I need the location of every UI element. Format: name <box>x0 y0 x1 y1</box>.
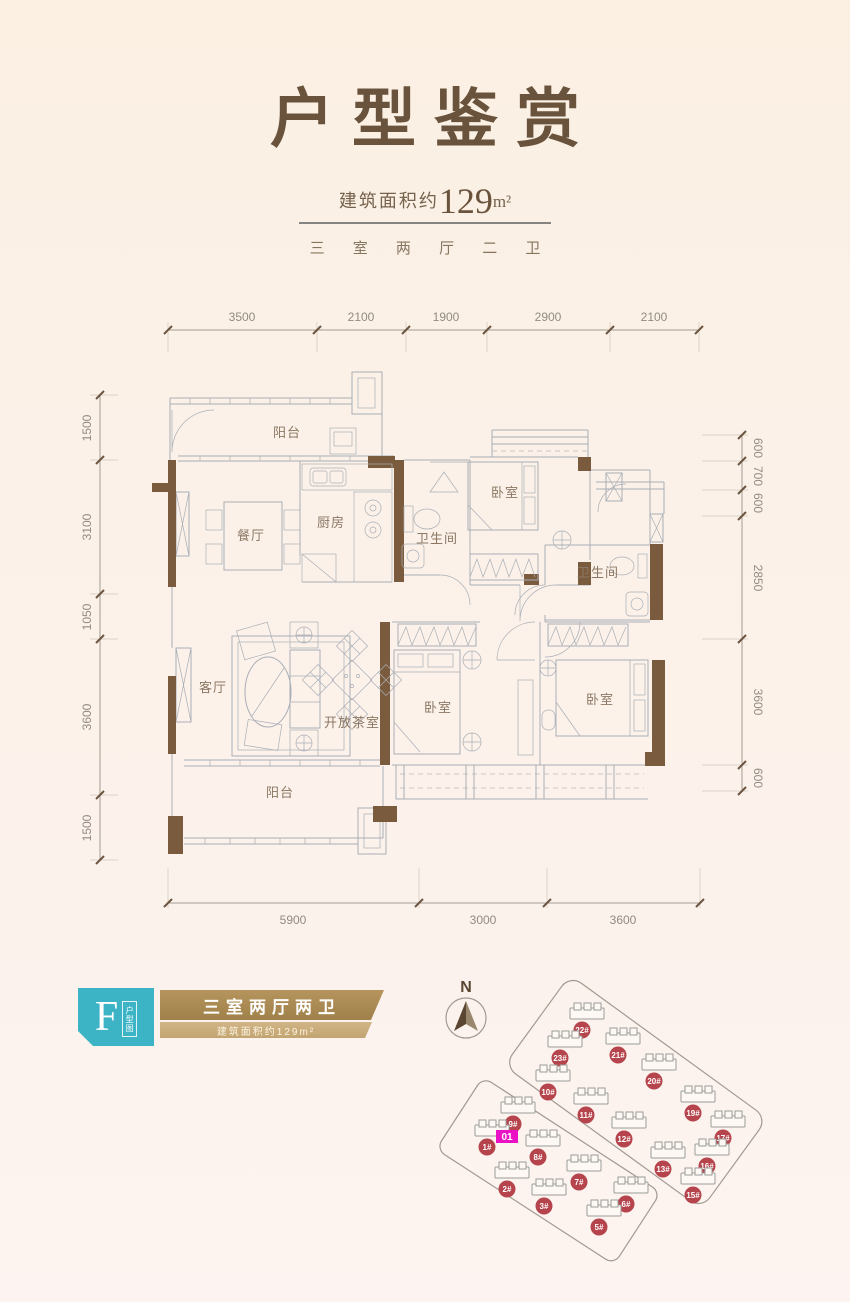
building-badge-label: 23# <box>553 1054 567 1063</box>
building-badge-label: 3# <box>540 1202 549 1211</box>
building-badge-label: 7# <box>575 1178 584 1187</box>
dim-right-1: 600 <box>751 438 765 458</box>
page: 户型鉴赏 建筑面积约129m² 三 室 两 厅 二 卫 3500 2100 19… <box>0 0 850 1302</box>
dim-top-1: 3500 <box>229 310 256 324</box>
room-label-tea-room: 开放茶室 <box>324 715 380 730</box>
building-footprint <box>574 1088 608 1104</box>
dim-right-5: 3600 <box>751 689 765 716</box>
building-footprint <box>495 1162 529 1178</box>
dim-right-6: 600 <box>751 768 765 788</box>
building-footprint <box>606 1028 640 1044</box>
building-footprint <box>587 1200 621 1216</box>
dim-left-2: 3100 <box>80 513 94 540</box>
building-footprint <box>711 1111 745 1127</box>
room-label-bedroom-right: 卧室 <box>586 692 614 707</box>
building-footprint <box>532 1179 566 1195</box>
room-label-balcony-top: 阳台 <box>273 425 301 440</box>
building-badge-label: 12# <box>617 1135 631 1144</box>
dim-top-3: 1900 <box>433 310 460 324</box>
dim-top-5: 2100 <box>641 310 668 324</box>
building-badge-label: 10# <box>541 1088 555 1097</box>
unit-01-label: 01 <box>501 1132 513 1143</box>
dim-right-2: 700 <box>751 466 765 486</box>
type-area-banner: 建筑面积约129m² <box>160 1022 372 1038</box>
room-label-balcony-bottom: 阳台 <box>266 785 294 800</box>
dim-top-4: 2900 <box>535 310 562 324</box>
dim-bottom-1: 5900 <box>280 913 307 927</box>
building-badge-label: 6# <box>622 1200 631 1209</box>
dim-left-3: 1050 <box>80 603 94 630</box>
dim-right-3: 600 <box>751 493 765 513</box>
building-badge-label: 9# <box>509 1120 518 1129</box>
building-footprint <box>642 1054 676 1070</box>
building-footprint <box>501 1097 535 1113</box>
room-label-bath2: 卫生间 <box>577 565 619 580</box>
building-badge-label: 5# <box>595 1223 604 1232</box>
building-footprint <box>567 1155 601 1171</box>
dim-left-1: 1500 <box>80 414 94 441</box>
building-badge-label: 8# <box>534 1153 543 1162</box>
compass-needle-light <box>466 1001 478 1031</box>
building-badge-label: 1# <box>483 1143 492 1152</box>
plan-walls <box>170 372 664 854</box>
room-label-bedroom-mid: 卧室 <box>424 700 452 715</box>
building-badge-label: 20# <box>647 1077 661 1086</box>
building-footprint <box>536 1065 570 1081</box>
room-label-living: 客厅 <box>199 680 227 695</box>
building-badge-label: 13# <box>656 1165 670 1174</box>
type-letter: F <box>95 996 118 1038</box>
building-badge-label: 21# <box>611 1051 625 1060</box>
building-footprint <box>695 1139 729 1155</box>
north-label: N <box>460 979 472 996</box>
plan-wall-chunks <box>152 456 665 854</box>
room-label-bedroom-top: 卧室 <box>491 485 519 500</box>
building-footprint <box>570 1003 604 1019</box>
type-tag: 户型图 <box>122 1001 137 1037</box>
room-label-bath1: 卫生间 <box>416 531 458 546</box>
building-footprint <box>614 1177 648 1193</box>
room-labels: 阳台 餐厅 厨房 卫生间 卧室 卫生间 客厅 开放茶室 卧室 卧室 阳台 <box>199 425 619 800</box>
dim-left-4: 3600 <box>80 703 94 730</box>
room-label-kitchen: 厨房 <box>317 515 345 530</box>
building-badge-label: 11# <box>580 1111 593 1120</box>
building-footprint <box>651 1142 685 1158</box>
compass-needle-dark <box>454 1001 466 1031</box>
room-label-dining: 餐厅 <box>237 528 265 543</box>
building-badge-label: 15# <box>686 1191 700 1200</box>
type-name-banner: 三室两厅两卫 <box>160 990 384 1020</box>
dim-left-5: 1500 <box>80 814 94 841</box>
floorplan-canvas: 3500 2100 1900 2900 2100 1500 3100 1050 … <box>0 0 850 1302</box>
type-letter-badge: F 户型图 <box>78 988 154 1046</box>
dim-right-4: 2850 <box>751 565 765 592</box>
building-footprint <box>612 1112 646 1128</box>
dim-bottom-2: 3000 <box>470 913 497 927</box>
building-footprint <box>681 1168 715 1184</box>
site-plan: N 22#23#21#20#10#19#11#9#12#17#1#8#13#16… <box>436 975 767 1265</box>
building-footprint <box>681 1086 715 1102</box>
type-card: F 户型图 三室两厅两卫 建筑面积约129m² <box>78 988 388 1048</box>
building-footprint <box>526 1130 560 1146</box>
site-parcel-lower <box>436 1077 661 1265</box>
building-badge-label: 19# <box>686 1109 700 1118</box>
building-footprint <box>548 1031 582 1047</box>
building-badge-label: 2# <box>503 1185 512 1194</box>
dim-top-2: 2100 <box>348 310 375 324</box>
dim-bottom-3: 3600 <box>610 913 637 927</box>
